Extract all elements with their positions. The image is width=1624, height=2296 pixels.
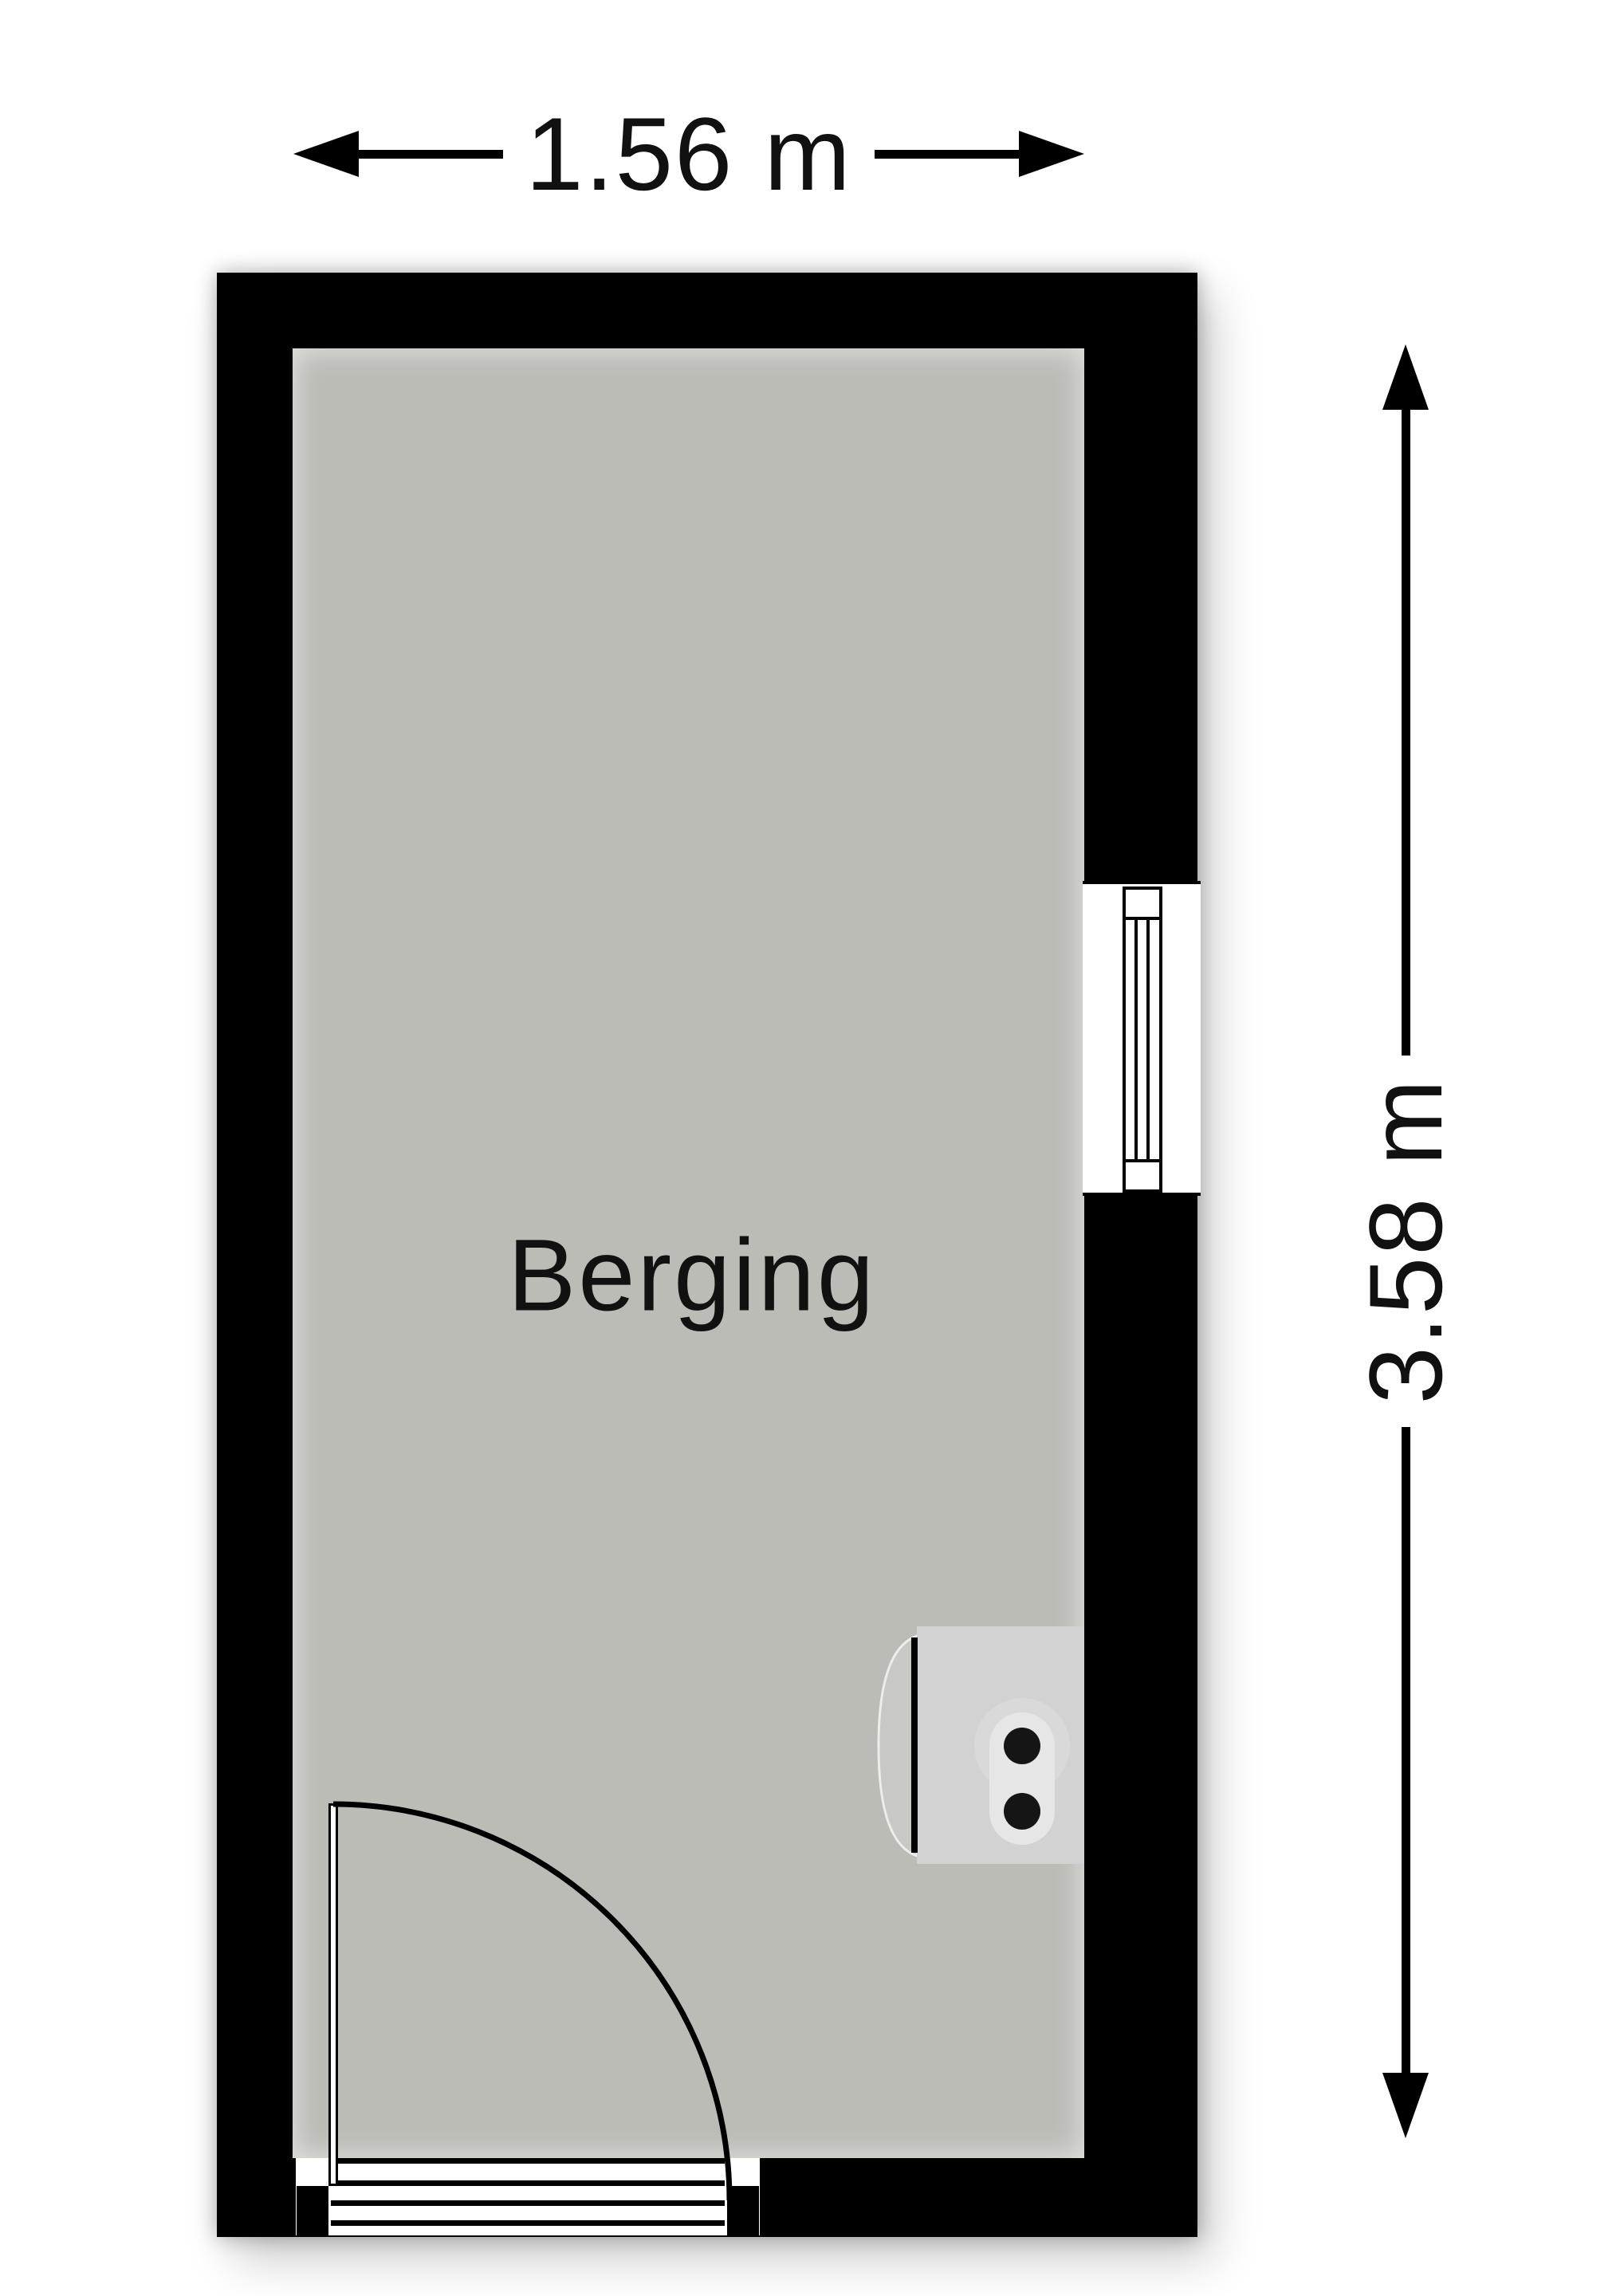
- window-frame-top: [1126, 917, 1159, 920]
- threshold-line: [331, 2220, 725, 2226]
- dimension-height-line-top: [1402, 410, 1410, 1056]
- dimension-width-label: 1.56 m: [503, 102, 874, 206]
- dimension-height: 3.58 m: [1347, 344, 1464, 2138]
- room-name-label: Berging: [508, 1217, 876, 1335]
- floorplan-canvas: 1.56 m 3.58 m: [0, 0, 1624, 2296]
- window-symbol: [1083, 881, 1201, 1196]
- arrow-right-icon: [1019, 131, 1084, 177]
- door-jamb-left: [297, 2186, 328, 2235]
- door-leaf: [328, 1803, 338, 2186]
- dimension-height-line-bottom: [1402, 1427, 1410, 2073]
- door-jamb-right: [727, 2186, 759, 2235]
- threshold-line: [331, 2180, 725, 2186]
- window-glass-line: [1134, 920, 1138, 1159]
- room-outline-walls: Berging: [217, 273, 1197, 2237]
- door-threshold: [296, 2158, 760, 2235]
- arrow-left-icon: [293, 131, 359, 177]
- dimension-width: 1.56 m: [293, 98, 1084, 210]
- window-sash: [1123, 887, 1162, 1193]
- dimension-width-line-left: [359, 150, 503, 159]
- dimension-height-label: 3.58 m: [1354, 1056, 1457, 1426]
- window-glass-line: [1146, 920, 1150, 1159]
- arrow-up-icon: [1382, 344, 1429, 410]
- dimension-width-line-right: [875, 150, 1019, 159]
- arrow-down-icon: [1382, 2073, 1429, 2138]
- threshold-line: [331, 2200, 725, 2206]
- threshold-line: [331, 2158, 725, 2164]
- window-frame-bottom: [1126, 1159, 1159, 1162]
